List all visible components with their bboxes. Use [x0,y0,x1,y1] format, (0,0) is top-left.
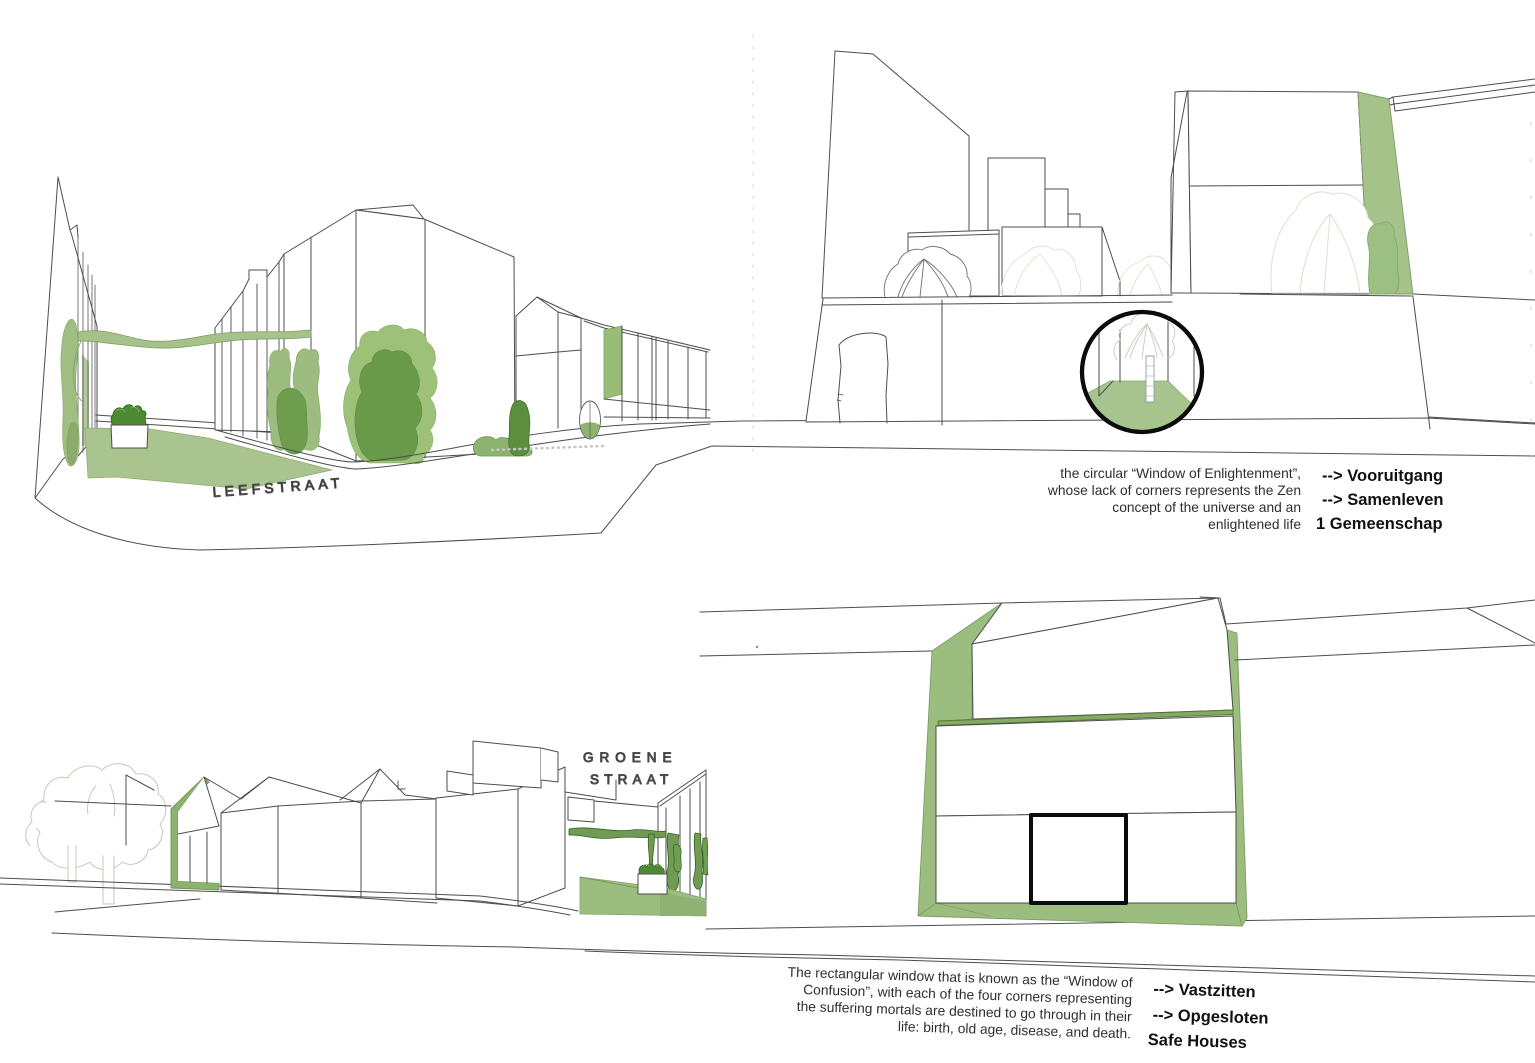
svg-text:STRAAT: STRAAT [590,772,673,787]
svg-text:whose lack of corners represen: whose lack of corners represents the Zen [1047,483,1301,498]
svg-text:--> Samenleven: --> Samenleven [1322,491,1444,509]
svg-text:--> Vooruitgang: --> Vooruitgang [1322,467,1443,485]
svg-text:GROENE: GROENE [583,750,678,765]
svg-text:concept of the universe and an: concept of the universe and an [1112,500,1301,515]
svg-text:Safe Houses: Safe Houses [1148,1031,1248,1052]
svg-text:enlightened life: enlightened life [1208,517,1301,532]
svg-text:--> Opgesloten: --> Opgesloten [1152,1006,1268,1028]
svg-text:1 Gemeenschap: 1 Gemeenschap [1316,515,1443,533]
svg-text:--> Vastzitten: --> Vastzitten [1153,980,1256,1001]
svg-text:the circular “Window of Enligh: the circular “Window of Enlightenment”, [1060,466,1301,481]
